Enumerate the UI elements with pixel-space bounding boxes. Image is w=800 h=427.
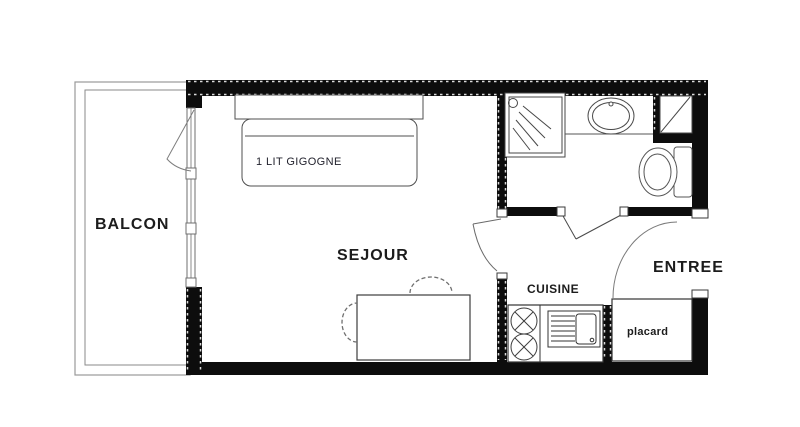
room-label-balcony: BALCON [95,217,169,233]
room-label-entry: ENTREE [653,260,724,276]
toilet [639,147,692,197]
room-label-closet: placard [627,327,668,338]
washbasin [588,98,634,134]
kitchen-sink [548,311,600,347]
floor-plan: BALCON SEJOUR ENTREE CUISINE placard 1 L… [0,0,800,427]
wall-bathroom-bottom-left [507,207,563,216]
wall-bottom [186,362,708,375]
balcony-french-door [186,108,196,287]
wall-left-lower [186,287,202,375]
trundle-bed [235,95,423,186]
floor-plan-drawing [0,0,800,427]
chair-arc-top [410,277,452,293]
passage-door [473,219,501,271]
wall-right-lower [692,298,708,375]
wall-bathroom-bottom-right [622,207,692,216]
wall-shaft-bottom [653,133,692,143]
technical-shaft [660,96,692,133]
dining-table [357,295,470,360]
chair-arc-left [342,303,357,342]
room-label-kitchen: CUISINE [527,283,579,295]
shower [505,93,565,157]
room-label-living: SEJOUR [337,248,409,264]
wall-right-upper [692,80,708,216]
wall-top [186,80,708,96]
bathroom-door [563,215,621,239]
bed-label: 1 LIT GIGOGNE [256,157,342,168]
